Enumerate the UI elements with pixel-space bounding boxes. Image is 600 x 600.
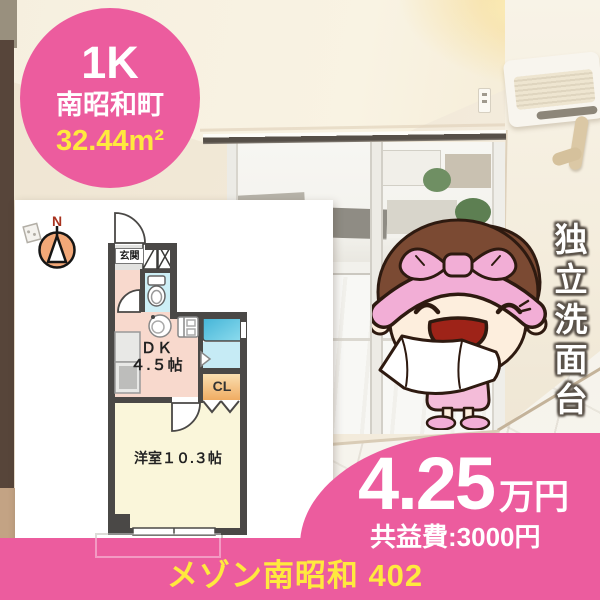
entrance-door [115,213,145,243]
common-fee: 共益費:3000円 [370,517,541,554]
toilet-fixture [148,276,165,306]
rent-amount: 4.25 [358,442,494,525]
district-name: 南昭和町 [56,87,164,123]
dk-label-line2: ４.５帖 [118,357,196,374]
floor-area: 32.44m² [56,123,164,159]
dk-label: ＤＫ ４.５帖 [118,340,196,374]
rent-price: 4.25万円 [358,441,569,526]
dk-label-line1: ＤＫ [118,340,196,357]
balcony-outline-ghost [95,533,221,558]
property-badge: 1K 南昭和町 32.44m² [20,8,200,188]
layout-type: 1K [81,39,139,87]
mascot-slipper [427,417,455,430]
ac-grille [513,69,595,110]
compass-north-label: N [52,213,62,229]
city-tree [423,168,451,192]
mascot-slipper [461,417,489,430]
bathroom [203,342,243,368]
compass: N [23,213,74,268]
kitchen-sink [149,315,171,337]
floor-plan-card: N 玄関 ＤＫ ４.５帖 CL 洋室１０.３帖 [15,200,333,545]
mascot-character [372,212,548,430]
closet-label: CL [205,378,239,394]
bath-window [241,322,246,338]
feature-vertical-text: 独立洗面台 [548,222,588,437]
city-building [445,154,491,188]
door-frame [0,40,14,492]
entrance-label: 玄関 [115,248,144,264]
listing-card: 独立洗面台 [0,0,600,600]
rent-unit: 万円 [499,478,569,517]
wall-switch [478,88,491,113]
compass-doodle [23,223,41,242]
bedroom-label: 洋室１０.３帖 [117,448,239,468]
kitchen-stove [178,317,198,337]
ac-vent [536,106,598,120]
mascot-bow-knot [444,254,472,276]
